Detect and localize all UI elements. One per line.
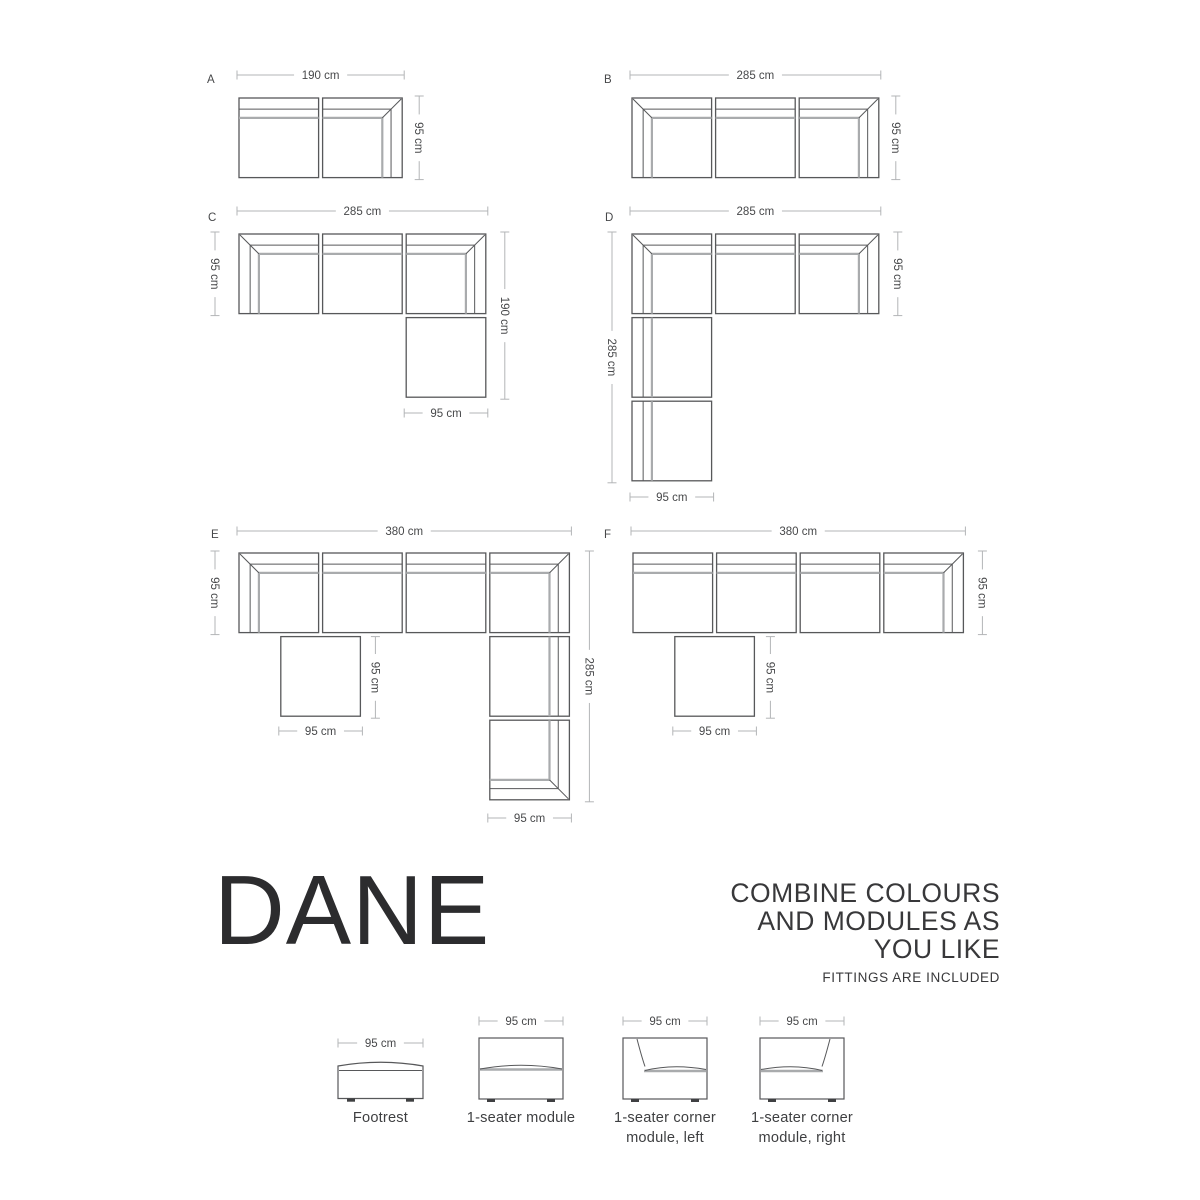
module-footrest (406, 318, 486, 398)
module-corner-top-right (490, 553, 570, 633)
dimension-label: 380 cm (385, 526, 423, 538)
module-back-right (490, 637, 570, 717)
dimension: 285 cm (605, 232, 617, 483)
dimension: 285 cm (237, 206, 488, 218)
dimension: 380 cm (631, 526, 965, 538)
module-outline (281, 637, 361, 717)
dimension: 95 cm (891, 232, 903, 316)
tagline-line: AND MODULES AS (730, 907, 1000, 935)
dimension-label: 285 cm (344, 206, 382, 218)
module-corner-top-left (632, 234, 712, 314)
corner-left-icon: 95 cm (623, 1016, 707, 1102)
dimension: 95 cm (368, 637, 380, 719)
module-outline (633, 553, 713, 633)
module-outline (717, 553, 797, 633)
config-label-B: B (604, 74, 612, 86)
config-label-D: D (605, 212, 613, 224)
module-corner-top-left (632, 98, 712, 178)
module-foot (347, 1099, 355, 1102)
config-C: C285 cm95 cm190 cm95 cm (208, 206, 510, 420)
module-outline (239, 98, 319, 178)
dimension-label: 285 cm (737, 206, 775, 218)
module-outline (632, 401, 712, 481)
dimension: 95 cm (404, 408, 488, 420)
module-foot (487, 1099, 495, 1102)
module-foot (406, 1099, 414, 1102)
config-B: B285 cm95 cm (604, 70, 901, 180)
module-foot (828, 1099, 836, 1102)
module-corner-top-right (799, 234, 879, 314)
catalog-page: A190 cm95 cmB285 cm95 cmC285 cm95 cm190 … (0, 0, 1200, 1200)
tagline-line: YOU LIKE (730, 935, 1000, 963)
module-outline (323, 553, 403, 633)
module-foot (547, 1099, 555, 1102)
module-outline (760, 1038, 844, 1099)
dimension-label: 285 cm (737, 70, 775, 82)
dimension: 285 cm (630, 70, 881, 82)
module-corner-top-right (406, 234, 486, 314)
sofa-configuration-diagram: A190 cm95 cmB285 cm95 cmC285 cm95 cm190 … (0, 0, 1200, 1200)
legend-caption-line: 1-seater corner (712, 1108, 892, 1128)
module-corner-right-bottom (490, 720, 570, 800)
dimension: 95 cm (488, 813, 572, 825)
dimension-label: 95 cm (763, 662, 775, 693)
config-F: F380 cm95 cm95 cm95 cm (604, 526, 987, 738)
dimension-label: 95 cm (208, 258, 220, 289)
dimension: 190 cm (498, 232, 510, 399)
dimension: 380 cm (237, 526, 571, 538)
module-foot (691, 1099, 699, 1102)
dimension: 95 cm (279, 726, 363, 738)
config-label-F: F (604, 529, 611, 541)
config-label-C: C (208, 212, 216, 224)
legend-caption-line: module, right (712, 1128, 892, 1148)
dimension: 95 cm (673, 726, 757, 738)
module-back-left (632, 318, 712, 398)
module-outline (406, 553, 486, 633)
dimension: 285 cm (630, 206, 881, 218)
dimension: 95 cm (975, 551, 987, 635)
dimension: 190 cm (237, 70, 404, 82)
seater-icon: 95 cm (479, 1016, 563, 1102)
dimension-label: 95 cm (656, 492, 687, 504)
module-corner-top-right (799, 98, 879, 178)
config-D: D285 cm95 cm285 cm95 cm (605, 206, 903, 504)
module-foot (768, 1099, 776, 1102)
footrest-icon: 95 cm (338, 1038, 423, 1102)
product-title: DANE (214, 861, 490, 959)
module-back-top (800, 553, 880, 633)
module-back-top (633, 553, 713, 633)
dimension-label: 95 cm (889, 122, 901, 153)
module-corner-top-right (884, 553, 964, 633)
dimension-label: 285 cm (582, 658, 594, 696)
dimension-label: 95 cm (208, 577, 220, 608)
dimension-label: 285 cm (605, 339, 617, 377)
config-label-E: E (211, 529, 219, 541)
dimension: 95 cm (208, 551, 220, 635)
tagline-line: COMBINE COLOURS (730, 879, 1000, 907)
dimension-label: 95 cm (430, 408, 461, 420)
module-outline (716, 98, 796, 178)
module-corner-top-left (239, 234, 319, 314)
dimension-label: 95 cm (649, 1016, 680, 1028)
module-back-top (716, 234, 796, 314)
config-label-A: A (207, 74, 215, 86)
dimension: 95 cm (889, 96, 901, 180)
dimension: 95 cm (763, 637, 775, 719)
legend-caption: 1-seater cornermodule, right (712, 1108, 892, 1148)
fittings-note: FITTINGS ARE INCLUDED (730, 970, 1000, 985)
module-back-left (632, 401, 712, 481)
module-corner-top-left (239, 553, 319, 633)
module-outline (632, 318, 712, 398)
module-outline (623, 1038, 707, 1099)
module-footrest (281, 637, 361, 717)
dimension-label: 95 cm (699, 726, 730, 738)
dimension: 95 cm (208, 232, 220, 316)
module-back-top (323, 553, 403, 633)
dimension: 285 cm (582, 551, 594, 802)
module-outline (675, 637, 755, 717)
module-back-top (717, 553, 797, 633)
dimension-label: 95 cm (365, 1038, 396, 1050)
dimension-label: 95 cm (368, 662, 380, 693)
module-outline (490, 637, 570, 717)
module-back-top (716, 98, 796, 178)
module-back-top (323, 234, 403, 314)
module-line (338, 1062, 423, 1098)
dimension-label: 95 cm (786, 1016, 817, 1028)
dimension-label: 95 cm (891, 258, 903, 289)
config-E: E380 cm95 cm95 cm95 cm285 cm95 cm (208, 526, 594, 825)
module-outline (406, 318, 486, 398)
module-back-top (239, 98, 319, 178)
corner-right-icon: 95 cm (760, 1016, 844, 1102)
dimension: 95 cm (630, 492, 714, 504)
dimension-label: 95 cm (514, 813, 545, 825)
module-footrest (675, 637, 755, 717)
module-foot (631, 1099, 639, 1102)
tagline: COMBINE COLOURS AND MODULES AS YOU LIKE … (730, 879, 1000, 985)
module-outline (323, 234, 403, 314)
dimension: 95 cm (412, 96, 424, 180)
dimension-label: 95 cm (505, 1016, 536, 1028)
config-A: A190 cm95 cm (207, 70, 424, 180)
dimension-label: 95 cm (975, 577, 987, 608)
module-corner-top-right (323, 98, 403, 178)
dimension-label: 380 cm (779, 526, 817, 538)
dimension-label: 95 cm (412, 122, 424, 153)
dimension-label: 95 cm (305, 726, 336, 738)
dimension-label: 190 cm (498, 297, 510, 335)
module-back-top (406, 553, 486, 633)
dimension-label: 190 cm (302, 70, 340, 82)
module-outline (800, 553, 880, 633)
module-outline (716, 234, 796, 314)
